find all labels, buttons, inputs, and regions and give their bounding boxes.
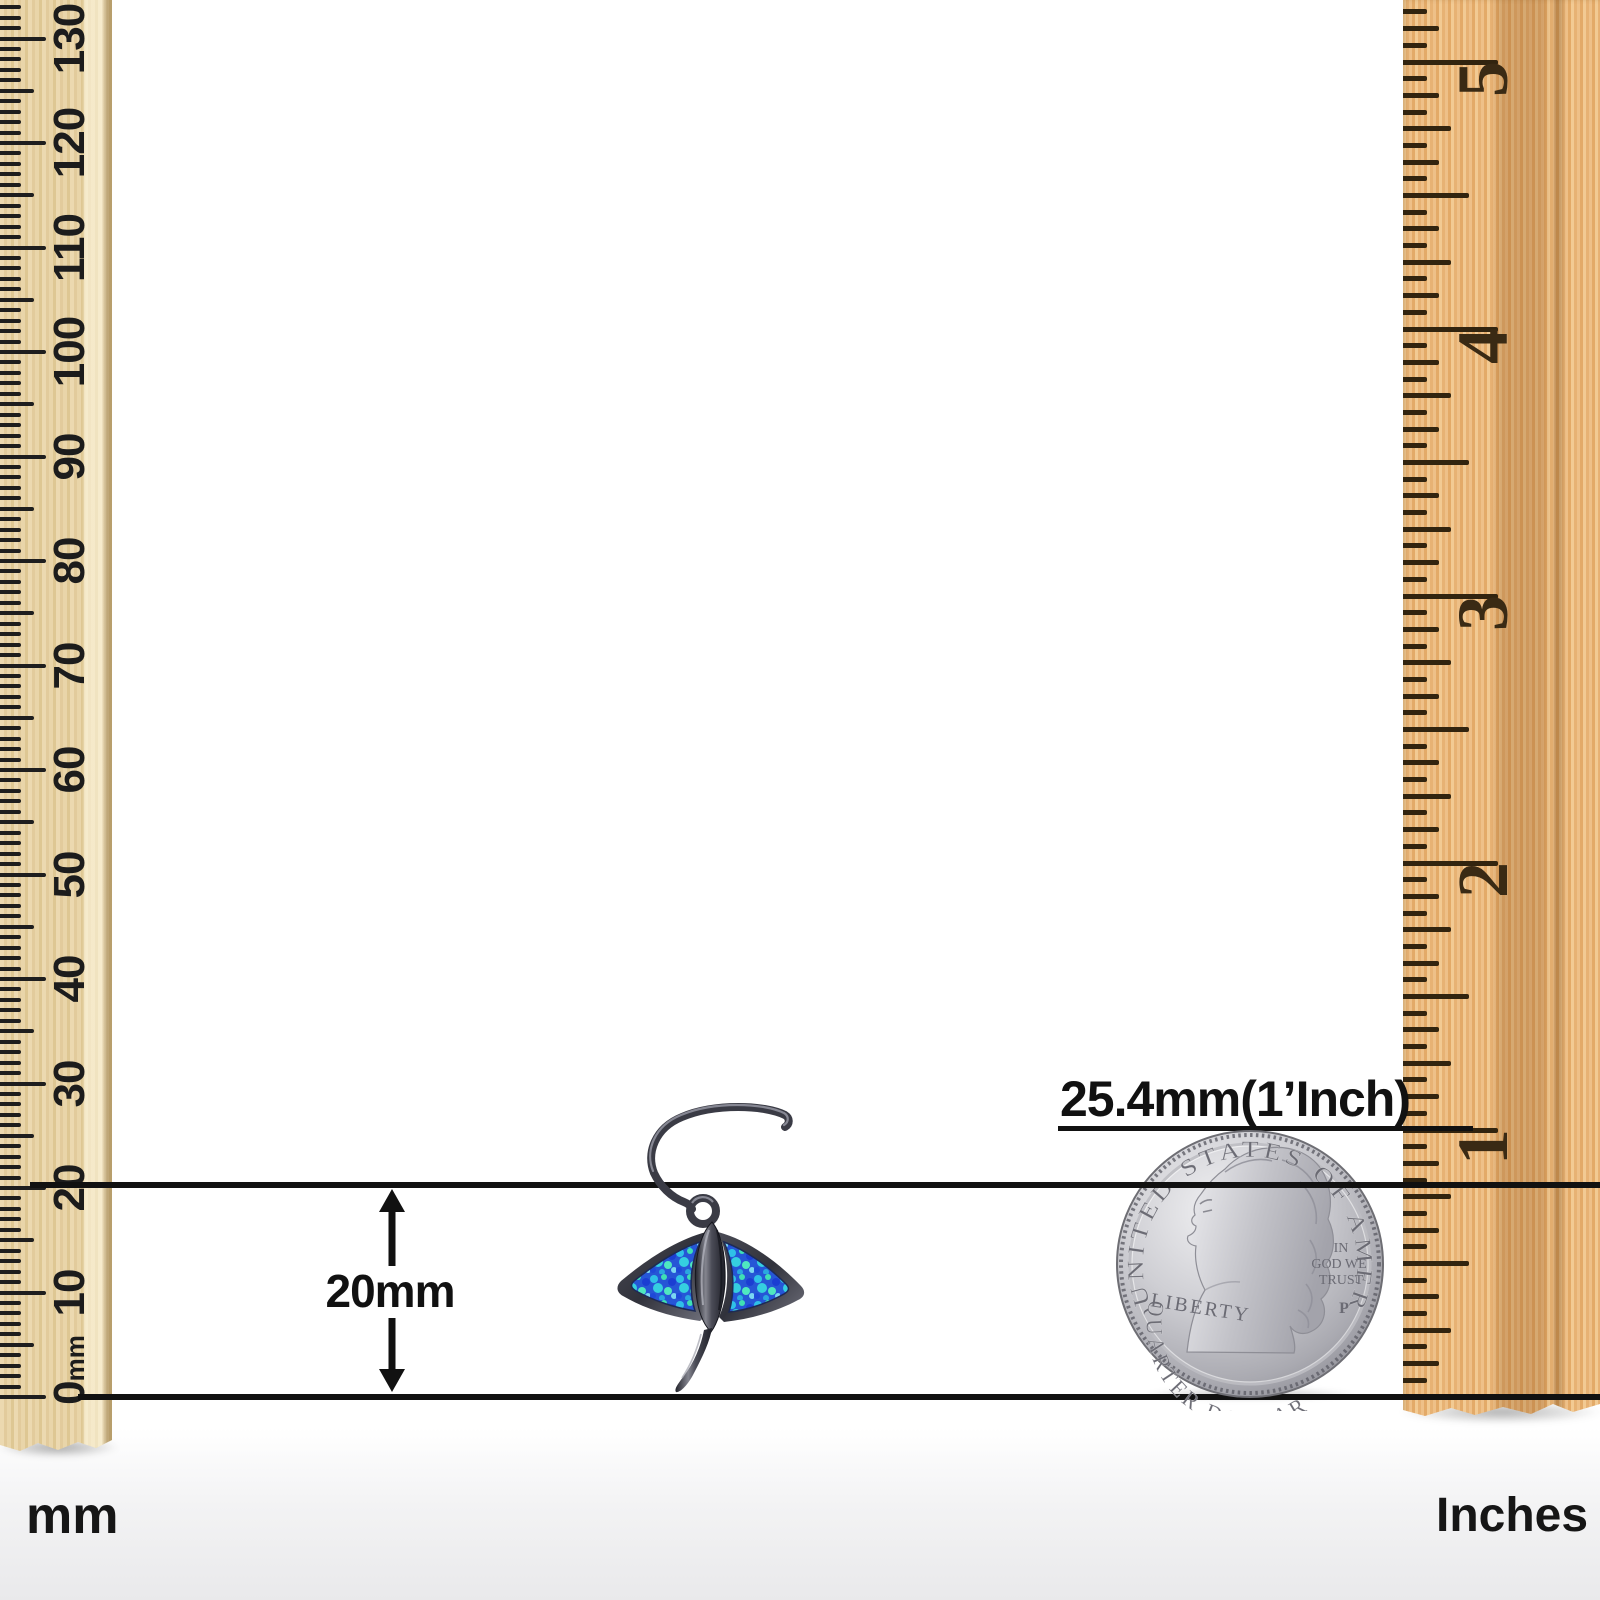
inch-tick (1403, 610, 1427, 615)
inch-tick (1403, 9, 1427, 14)
mm-tick (0, 601, 21, 605)
mm-tick (0, 1102, 21, 1106)
mm-tick-label: 70 (48, 642, 92, 689)
surface-gradient (0, 1428, 1600, 1600)
ear-wire-hook (650, 1105, 789, 1224)
inch-tick (1403, 1278, 1427, 1283)
inch-tick (1403, 1294, 1439, 1299)
inch-tick (1403, 460, 1469, 465)
mm-tick (0, 1322, 21, 1326)
mm-tick (0, 141, 46, 145)
mm-tick (0, 1311, 21, 1315)
mm-tick (0, 1050, 21, 1054)
inch-tick (1403, 226, 1439, 231)
mm-tick (0, 622, 21, 626)
mm-tick (0, 486, 21, 490)
mm-tick (0, 632, 21, 636)
inch-reference-label: 25.4mm(1’Inch) (1055, 1070, 1410, 1128)
inch-tick (1403, 977, 1427, 982)
mm-tick-label: 100 (48, 317, 92, 387)
mm-tick (0, 1071, 21, 1075)
inch-tick (1403, 1361, 1439, 1366)
inch-tick (1403, 477, 1427, 482)
inch-tick (1403, 1211, 1427, 1216)
mm-tick (0, 580, 21, 584)
mm-tick (0, 308, 21, 312)
inch-tick (1403, 577, 1427, 582)
inch-tick (1403, 527, 1451, 532)
inch-tick (1403, 927, 1451, 932)
mm-tick (0, 852, 21, 856)
mm-tick (0, 1176, 21, 1180)
inch-tick (1403, 260, 1451, 265)
mm-tick (0, 664, 46, 668)
inch-tick (1403, 760, 1439, 765)
inch-tick (1403, 1311, 1427, 1316)
mm-tick (0, 1155, 21, 1159)
inch-tick (1403, 410, 1427, 415)
inch-tick (1403, 1161, 1439, 1166)
inch-tick (1403, 777, 1427, 782)
mm-tick (0, 204, 21, 208)
mm-tick (0, 1385, 21, 1389)
mm-tick-label: 120 (48, 108, 92, 178)
mm-tick (0, 340, 21, 344)
mm-tick (0, 967, 21, 971)
inch-tick (1403, 560, 1439, 565)
mm-tick (0, 287, 21, 291)
mm-tick (0, 256, 21, 260)
mm-tick (0, 1364, 21, 1368)
inch-tick-label: 4 (1447, 328, 1519, 364)
mm-tick (0, 1196, 21, 1200)
mm-tick (0, 528, 21, 532)
inch-tick-label: 3 (1447, 595, 1519, 631)
mm-tick-label: 30 (48, 1060, 92, 1107)
inch-tick (1403, 810, 1427, 815)
inch-tick (1403, 1194, 1451, 1199)
inch-tick (1403, 1378, 1427, 1383)
inch-tick (1403, 293, 1439, 298)
mm-tick (0, 737, 21, 741)
inch-tick (1403, 744, 1427, 749)
inch-tick (1403, 510, 1427, 515)
mm-tick (0, 465, 21, 469)
inch-tick (1403, 393, 1451, 398)
mm-unit-label: mm (26, 1486, 118, 1546)
mm-tick (0, 873, 46, 877)
mm-tick (0, 225, 21, 229)
stingray-earring-image (585, 1095, 820, 1405)
mm-tick (0, 1207, 21, 1211)
inch-tick-label: 2 (1447, 862, 1519, 898)
inch-tick (1403, 126, 1451, 131)
mm-tick (0, 747, 21, 751)
mm-tick (0, 569, 21, 573)
inch-tick (1403, 1344, 1427, 1349)
mm-tick (0, 402, 34, 406)
mm-tick (0, 1029, 34, 1033)
inch-tick (1403, 694, 1439, 699)
inch-tick (1403, 110, 1427, 115)
mm-tick (0, 266, 21, 270)
mm-tick (0, 110, 21, 114)
mm-tick (0, 1061, 21, 1065)
inch-ruler: 12345 (1403, 0, 1600, 1422)
mm-tick (0, 371, 21, 375)
size-diagram: 0mm102030405060708090100110120130 12345 (0, 0, 1600, 1600)
inch-tick (1403, 160, 1439, 165)
inch-tick (1403, 310, 1427, 315)
arrowhead-down (379, 1369, 405, 1392)
mm-tick (0, 423, 21, 427)
mm-tick (0, 977, 46, 981)
mm-tick (0, 987, 21, 991)
arrowhead-up (379, 1189, 405, 1212)
mm-tick (0, 538, 21, 542)
mm-tick-label: 50 (48, 851, 92, 898)
mm-tick (0, 778, 21, 782)
mm-tick (0, 381, 21, 385)
mm-tick (0, 475, 21, 479)
mm-tick (0, 1395, 46, 1399)
coin-mint-mark: P (1339, 1300, 1349, 1317)
mm-tick (0, 1165, 21, 1169)
mm-tick (0, 653, 21, 657)
mm-tick (0, 643, 21, 647)
mm-tick (0, 1144, 21, 1148)
mm-tick (0, 78, 21, 82)
mm-tick (0, 1008, 21, 1012)
mm-tick (0, 758, 21, 762)
mm-tick (0, 57, 21, 61)
inch-tick (1403, 1261, 1469, 1266)
mm-tick (0, 1123, 21, 1127)
mm-tick (0, 517, 21, 521)
inch-tick (1403, 660, 1451, 665)
inch-tick (1403, 677, 1427, 682)
mm-tick (0, 674, 21, 678)
inch-tick (1403, 1044, 1427, 1049)
inch-tick (1403, 176, 1427, 181)
inch-tick (1403, 360, 1439, 365)
inch-tick (1403, 994, 1469, 999)
inch-tick (1403, 710, 1427, 715)
mm-tick (0, 1019, 21, 1023)
mm-tick (0, 172, 21, 176)
mm-tick (0, 559, 46, 563)
mm-tick (0, 799, 21, 803)
mm-tick (0, 684, 21, 688)
inch-tick (1403, 443, 1427, 448)
mm-tick (0, 789, 21, 793)
mm-tick (0, 893, 21, 897)
inch-tick (1403, 143, 1427, 148)
mm-tick (0, 716, 34, 720)
mm-tick (0, 1228, 21, 1232)
inch-tick (1403, 727, 1469, 732)
mm-tick (0, 705, 21, 709)
mm-tick (0, 1134, 34, 1138)
inch-tick (1403, 794, 1451, 799)
mm-tick (0, 862, 21, 866)
stingray-tail (675, 1328, 712, 1392)
inch-tick (1403, 93, 1439, 98)
mm-tick (0, 193, 34, 197)
mm-tick (0, 768, 46, 772)
inch-tick (1403, 193, 1469, 198)
inch-tick (1403, 377, 1427, 382)
mm-tick (0, 68, 21, 72)
mm-tick-label: 60 (48, 747, 92, 794)
inch-tick (1403, 894, 1439, 899)
mm-tick (0, 1092, 21, 1096)
inch-tick (1403, 493, 1439, 498)
mm-tick (0, 1353, 21, 1357)
mm-tick-label: 130 (48, 3, 92, 73)
quarter-coin: UNITED STATES OF AMERICA QUARTER DOLLAR … (1105, 1119, 1397, 1411)
mm-tick (0, 1343, 34, 1347)
mm-tick (0, 360, 21, 364)
mm-tick (0, 151, 21, 155)
mm-tick (0, 810, 21, 814)
inch-tick (1403, 26, 1439, 31)
mm-tick (0, 841, 21, 845)
mm-tick (0, 1291, 46, 1295)
mm-tick (0, 350, 46, 354)
mm-tick (0, 956, 21, 960)
inch-tick (1403, 76, 1427, 81)
inch-tick (1403, 343, 1427, 348)
mm-tick (0, 1113, 21, 1117)
inch-tick-label: 1 (1447, 1129, 1519, 1165)
inch-tick-label: 5 (1447, 61, 1519, 97)
mm-tick (0, 1040, 21, 1044)
mm-tick (0, 590, 21, 594)
svg-text:GOD WE: GOD WE (1311, 1257, 1366, 1272)
mm-tick (0, 914, 21, 918)
mm-tick (0, 455, 46, 459)
mm-tick (0, 496, 21, 500)
mm-tick (0, 946, 21, 950)
inch-tick (1403, 1061, 1451, 1066)
inch-tick (1403, 844, 1427, 849)
mm-tick (0, 998, 21, 1002)
millimeter-ruler: 0mm102030405060708090100110120130 (0, 0, 112, 1455)
mm-tick (0, 1301, 21, 1305)
inches-unit-label: Inches (1436, 1488, 1588, 1543)
mm-tick (0, 277, 21, 281)
inch-tick (1403, 243, 1427, 248)
mm-tick-label: 90 (48, 433, 92, 480)
mm-tick (0, 726, 21, 730)
mm-tick (0, 444, 21, 448)
mm-tick-label: 110 (48, 214, 92, 282)
mm-tick (0, 549, 21, 553)
mm-tick (0, 298, 34, 302)
mm-tick (0, 329, 21, 333)
inch-tick (1403, 276, 1427, 281)
mm-tick (0, 131, 21, 135)
mm-tick (0, 507, 34, 511)
mm-tick-label: 80 (48, 538, 92, 585)
inch-tick (1403, 1244, 1427, 1249)
mm-tick (0, 413, 21, 417)
mm-tick (0, 47, 21, 51)
mm-tick (0, 925, 34, 929)
mm-tick (0, 1259, 21, 1263)
mm-tick (0, 214, 21, 218)
mm-tick (0, 1238, 34, 1242)
svg-text:IN: IN (1334, 1241, 1349, 1256)
mm-tick (0, 89, 34, 93)
mm-tick (0, 831, 21, 835)
mm-tick (0, 883, 21, 887)
mm-tick-label: 40 (48, 956, 92, 1003)
mm-tick (0, 37, 46, 41)
mm-tick (0, 935, 21, 939)
mm-tick (0, 1217, 21, 1221)
mm-tick (0, 235, 21, 239)
mm-tick (0, 1270, 21, 1274)
mm-tick (0, 434, 21, 438)
mm-tick (0, 162, 21, 166)
inch-tick (1403, 644, 1427, 649)
mm-tick (0, 99, 21, 103)
inch-tick (1403, 1144, 1427, 1149)
mm-tick (0, 1280, 21, 1284)
mm-tick (0, 16, 21, 20)
mm-tick (0, 319, 21, 323)
inch-tick (1403, 543, 1427, 548)
mm-tick-label: 10 (48, 1269, 92, 1316)
inch-tick (1403, 911, 1427, 916)
mm-tick (0, 26, 21, 30)
inch-tick (1403, 210, 1427, 215)
inch-tick (1403, 1027, 1439, 1032)
inch-tick (1403, 1228, 1439, 1233)
height-measurement-label: 20mm (310, 1264, 470, 1318)
mm-tick (0, 120, 21, 124)
inch-tick (1403, 1328, 1451, 1333)
mm-tick (0, 820, 34, 824)
inch-tick (1403, 627, 1439, 632)
inch-tick (1403, 877, 1427, 882)
svg-text:TRUST: TRUST (1319, 1273, 1364, 1288)
mm-tick-label: 20 (48, 1165, 92, 1212)
mm-tick (0, 5, 21, 9)
mm-tick (0, 183, 21, 187)
mm-tick (0, 1082, 46, 1086)
mm-tick (0, 1332, 21, 1336)
inch-tick (1403, 961, 1439, 966)
inch-tick (1403, 43, 1427, 48)
mm-tick (0, 1249, 21, 1253)
mm-tick (0, 392, 21, 396)
mm-tick (0, 611, 34, 615)
inch-tick (1403, 427, 1439, 432)
inch-tick (1403, 827, 1439, 832)
inch-tick (1403, 944, 1427, 949)
mm-tick (0, 246, 46, 250)
mm-tick (0, 1374, 21, 1378)
inch-tick (1403, 1011, 1427, 1016)
mm-tick (0, 695, 21, 699)
mm-tick (0, 904, 21, 908)
